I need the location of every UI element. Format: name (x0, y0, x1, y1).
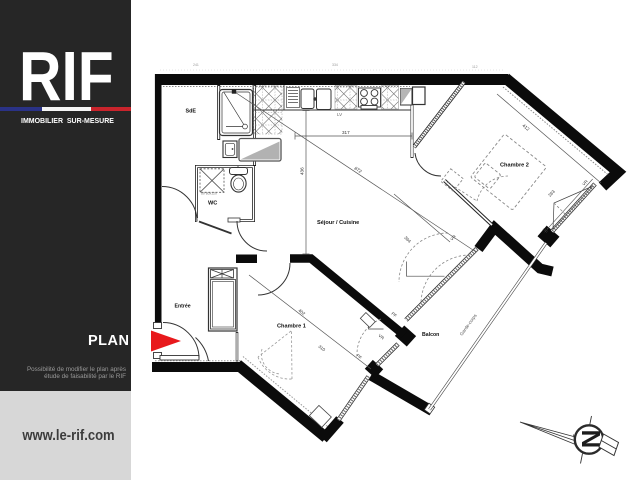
svg-text:WC: WC (208, 201, 217, 207)
svg-text:PF: PF (390, 311, 398, 319)
svg-text:310: 310 (317, 344, 326, 353)
svg-text:Entrée: Entrée (175, 304, 191, 310)
svg-text:334: 334 (332, 63, 338, 67)
svg-text:60 80x120: 60 80x120 (201, 192, 217, 196)
svg-text:VR: VR (581, 179, 589, 187)
svg-text:241: 241 (193, 63, 199, 67)
svg-text:317: 317 (342, 130, 350, 135)
svg-text:263: 263 (547, 189, 556, 198)
svg-text:Séjour / Cuisine: Séjour / Cuisine (317, 220, 359, 226)
svg-text:402: 402 (297, 308, 306, 317)
svg-text:Chambre 2: Chambre 2 (500, 163, 529, 169)
svg-text:436: 436 (300, 167, 305, 175)
svg-text:SdE: SdE (186, 109, 197, 115)
svg-text:Garde-corps: Garde-corps (459, 312, 478, 336)
svg-text:Balcon: Balcon (422, 332, 439, 338)
svg-text:412: 412 (521, 123, 530, 132)
svg-text:872: 872 (353, 166, 363, 175)
svg-text:Chambre 1: Chambre 1 (277, 324, 306, 330)
svg-text:PF: PF (355, 353, 363, 361)
svg-text:LV: LV (337, 112, 342, 117)
svg-text:112: 112 (472, 65, 478, 69)
svg-text:364: 364 (403, 235, 412, 244)
svg-text:VR: VR (377, 333, 385, 341)
